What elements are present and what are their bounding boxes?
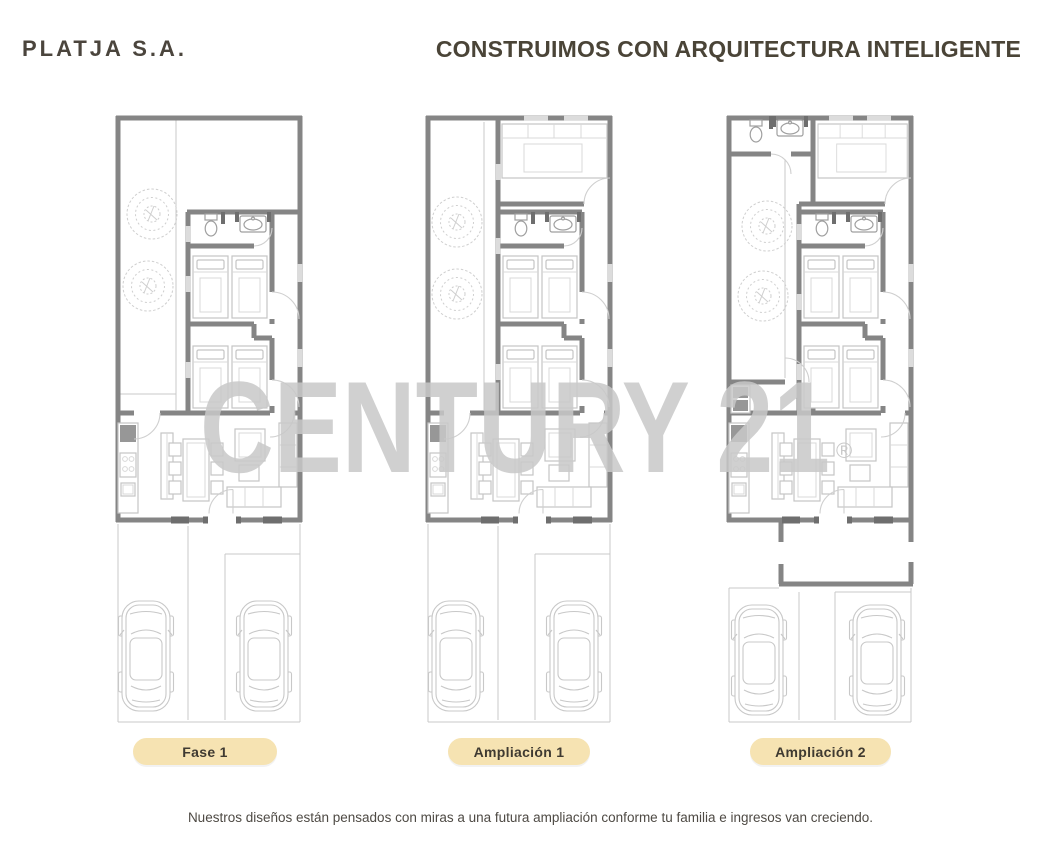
registered-trademark-icon: ® [836, 438, 852, 464]
phase-badge-fase-1: Fase 1 [133, 738, 277, 765]
toilet-icon [816, 214, 828, 236]
tree-icon [123, 261, 173, 311]
toilet-icon [515, 214, 527, 236]
parking [118, 524, 300, 722]
floorplan-fase-1 [114, 114, 304, 738]
floorplan-ampliacion-1 [424, 114, 614, 738]
twin-beds-icon [193, 346, 267, 408]
car-icon [850, 605, 905, 715]
toilet-icon [750, 120, 762, 142]
upper-bathroom [750, 120, 803, 142]
parking [428, 524, 610, 722]
phase-badge-label: Ampliación 1 [474, 744, 565, 760]
double-bed-icon [502, 124, 607, 178]
car-icon [732, 605, 787, 715]
tree-icon [127, 189, 177, 239]
tree-icon [432, 197, 482, 247]
car-icon [429, 601, 484, 711]
page-title: CONSTRUIMOS CON ARQUITECTURA INTELIGENTE [436, 36, 1021, 63]
twin-beds-icon [503, 256, 577, 318]
sink-icon [550, 216, 576, 232]
laundry-machines-icon [731, 385, 750, 413]
sink-icon [777, 120, 803, 136]
car-icon [237, 601, 292, 711]
sink-icon [240, 216, 266, 232]
floorplan-ampliacion-2 [725, 114, 915, 738]
phase-badge-ampliacion-1: Ampliación 1 [448, 738, 590, 765]
twin-beds-icon [804, 346, 878, 408]
phase-badge-label: Ampliación 2 [775, 744, 866, 760]
tree-icon [738, 271, 788, 321]
toilet-icon [205, 214, 217, 236]
door-arcs [771, 154, 911, 437]
phase-badge-label: Fase 1 [182, 744, 227, 760]
parking [729, 588, 911, 722]
twin-beds-icon [193, 256, 267, 318]
garden [738, 160, 792, 378]
car-icon [547, 601, 602, 711]
double-bed-icon [818, 124, 907, 178]
tree-icon [432, 269, 482, 319]
sink-icon [851, 216, 877, 232]
twin-beds-icon [804, 256, 878, 318]
footer-caption: Nuestros diseños están pensados con mira… [0, 810, 1061, 825]
car-icon [119, 601, 174, 711]
company-logo: PLATJA S.A. [22, 36, 187, 62]
garden [120, 120, 177, 410]
garden [432, 122, 484, 410]
twin-beds-icon [503, 346, 577, 408]
phase-badge-ampliacion-2: Ampliación 2 [750, 738, 891, 765]
